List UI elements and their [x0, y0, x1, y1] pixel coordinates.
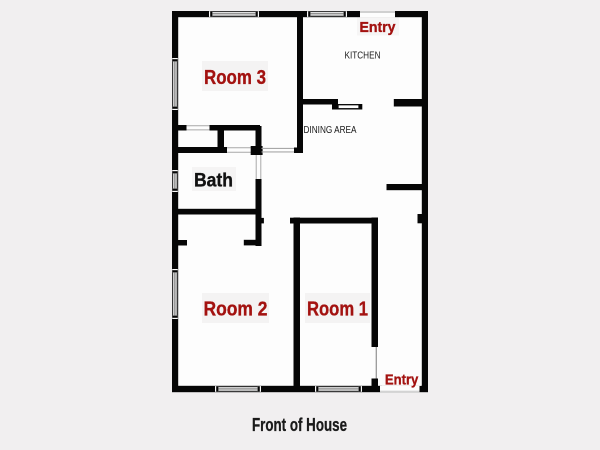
svg-text:Entry: Entry: [360, 19, 397, 36]
svg-text:Room 2: Room 2: [204, 298, 268, 321]
svg-text:Room 1: Room 1: [307, 298, 368, 321]
svg-text:KITCHEN: KITCHEN: [345, 51, 381, 62]
svg-text:Entry: Entry: [385, 371, 419, 388]
svg-text:Bath: Bath: [194, 171, 233, 192]
svg-text:DINING AREA: DINING AREA: [304, 125, 357, 136]
svg-text:Front of House: Front of House: [252, 414, 347, 435]
svg-text:Room 3: Room 3: [204, 66, 266, 89]
